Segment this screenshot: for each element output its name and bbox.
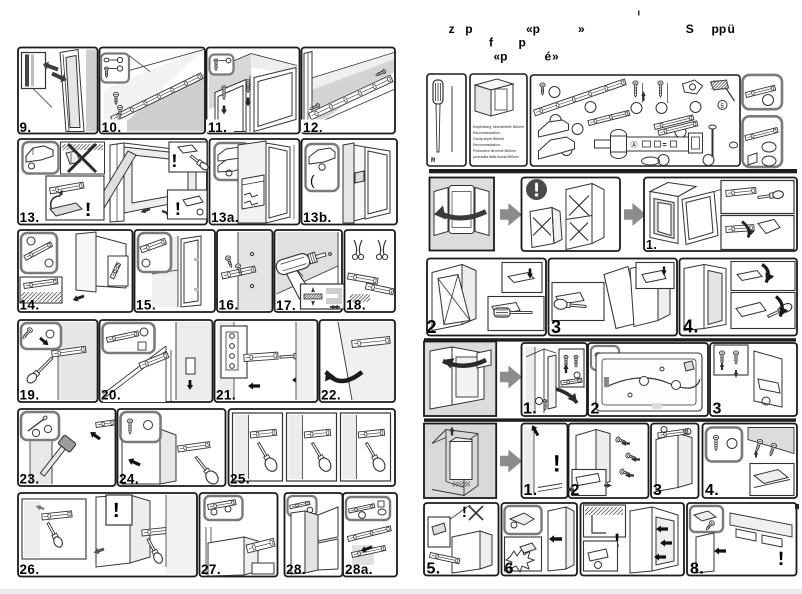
svg-text:17.: 17. xyxy=(276,298,296,313)
svg-text:«p: «p xyxy=(494,50,508,64)
svg-text:4.: 4. xyxy=(683,317,699,337)
svg-text:23.: 23. xyxy=(20,472,40,487)
svg-text:p: p xyxy=(519,36,526,50)
svg-text:10.: 10. xyxy=(102,120,122,135)
svg-text:5.: 5. xyxy=(427,561,441,578)
svg-text:21.: 21. xyxy=(216,388,236,403)
svg-text:Cavity depth 560mm: Cavity depth 560mm xyxy=(473,137,504,141)
svg-text:profondita della fornita 560mm: profondita della fornita 560mm xyxy=(473,155,519,159)
svg-text:S: S xyxy=(686,22,694,36)
svg-text:28a.: 28a. xyxy=(345,562,373,577)
svg-text:1.: 1. xyxy=(523,401,537,418)
svg-text:13a.: 13a. xyxy=(211,210,239,225)
svg-text:11.: 11. xyxy=(208,120,227,135)
svg-text:1.: 1. xyxy=(646,238,657,252)
svg-text:ü: ü xyxy=(728,22,735,36)
svg-text:2: 2 xyxy=(591,401,600,418)
svg-text:Recommendation:: Recommendation: xyxy=(473,131,501,135)
svg-text:12.: 12. xyxy=(303,120,323,135)
svg-text:6: 6 xyxy=(505,561,514,578)
svg-text:»: » xyxy=(578,22,585,36)
svg-text:3: 3 xyxy=(653,482,662,499)
svg-text:(: ( xyxy=(310,172,315,188)
svg-text:4.: 4. xyxy=(705,482,719,499)
svg-text:=: = xyxy=(663,142,667,149)
svg-text:22.: 22. xyxy=(321,388,341,403)
svg-text:9.: 9. xyxy=(20,120,32,135)
svg-text:18.: 18. xyxy=(346,298,366,313)
svg-text:28.: 28. xyxy=(286,562,306,577)
svg-text:Profondeur de niche 560mm: Profondeur de niche 560mm xyxy=(473,149,516,153)
svg-text:»: » xyxy=(552,50,559,64)
svg-text:2: 2 xyxy=(427,317,437,337)
svg-text:é: é xyxy=(545,50,552,64)
svg-text:pp: pp xyxy=(712,22,727,36)
svg-text:20.: 20. xyxy=(101,388,121,403)
svg-text:25.: 25. xyxy=(230,472,250,487)
svg-text:p: p xyxy=(465,22,472,36)
svg-text:1.: 1. xyxy=(524,482,538,499)
svg-text:8.: 8. xyxy=(690,561,704,578)
svg-text:3: 3 xyxy=(713,401,722,418)
svg-text:14.: 14. xyxy=(20,298,40,313)
svg-text:z: z xyxy=(449,22,455,36)
svg-text:Recommandation:: Recommandation: xyxy=(473,143,501,147)
svg-text:«p: «p xyxy=(526,22,540,36)
svg-text:13b.: 13b. xyxy=(303,210,332,225)
svg-text:16.: 16. xyxy=(219,298,239,313)
svg-text:24.: 24. xyxy=(119,472,139,487)
svg-text:27.: 27. xyxy=(201,562,221,577)
svg-text:19.: 19. xyxy=(20,388,40,403)
svg-text:2: 2 xyxy=(571,482,580,499)
svg-text:15.: 15. xyxy=(136,298,156,313)
svg-text:13.: 13. xyxy=(20,210,40,225)
svg-text:3: 3 xyxy=(551,317,561,337)
svg-text:Empfohlung: Nischentiefe 560mm: Empfohlung: Nischentiefe 560mm xyxy=(473,125,524,129)
svg-text:R: R xyxy=(431,158,436,164)
svg-text:Ⓐ: Ⓐ xyxy=(631,141,638,149)
svg-text:26.: 26. xyxy=(20,562,40,577)
